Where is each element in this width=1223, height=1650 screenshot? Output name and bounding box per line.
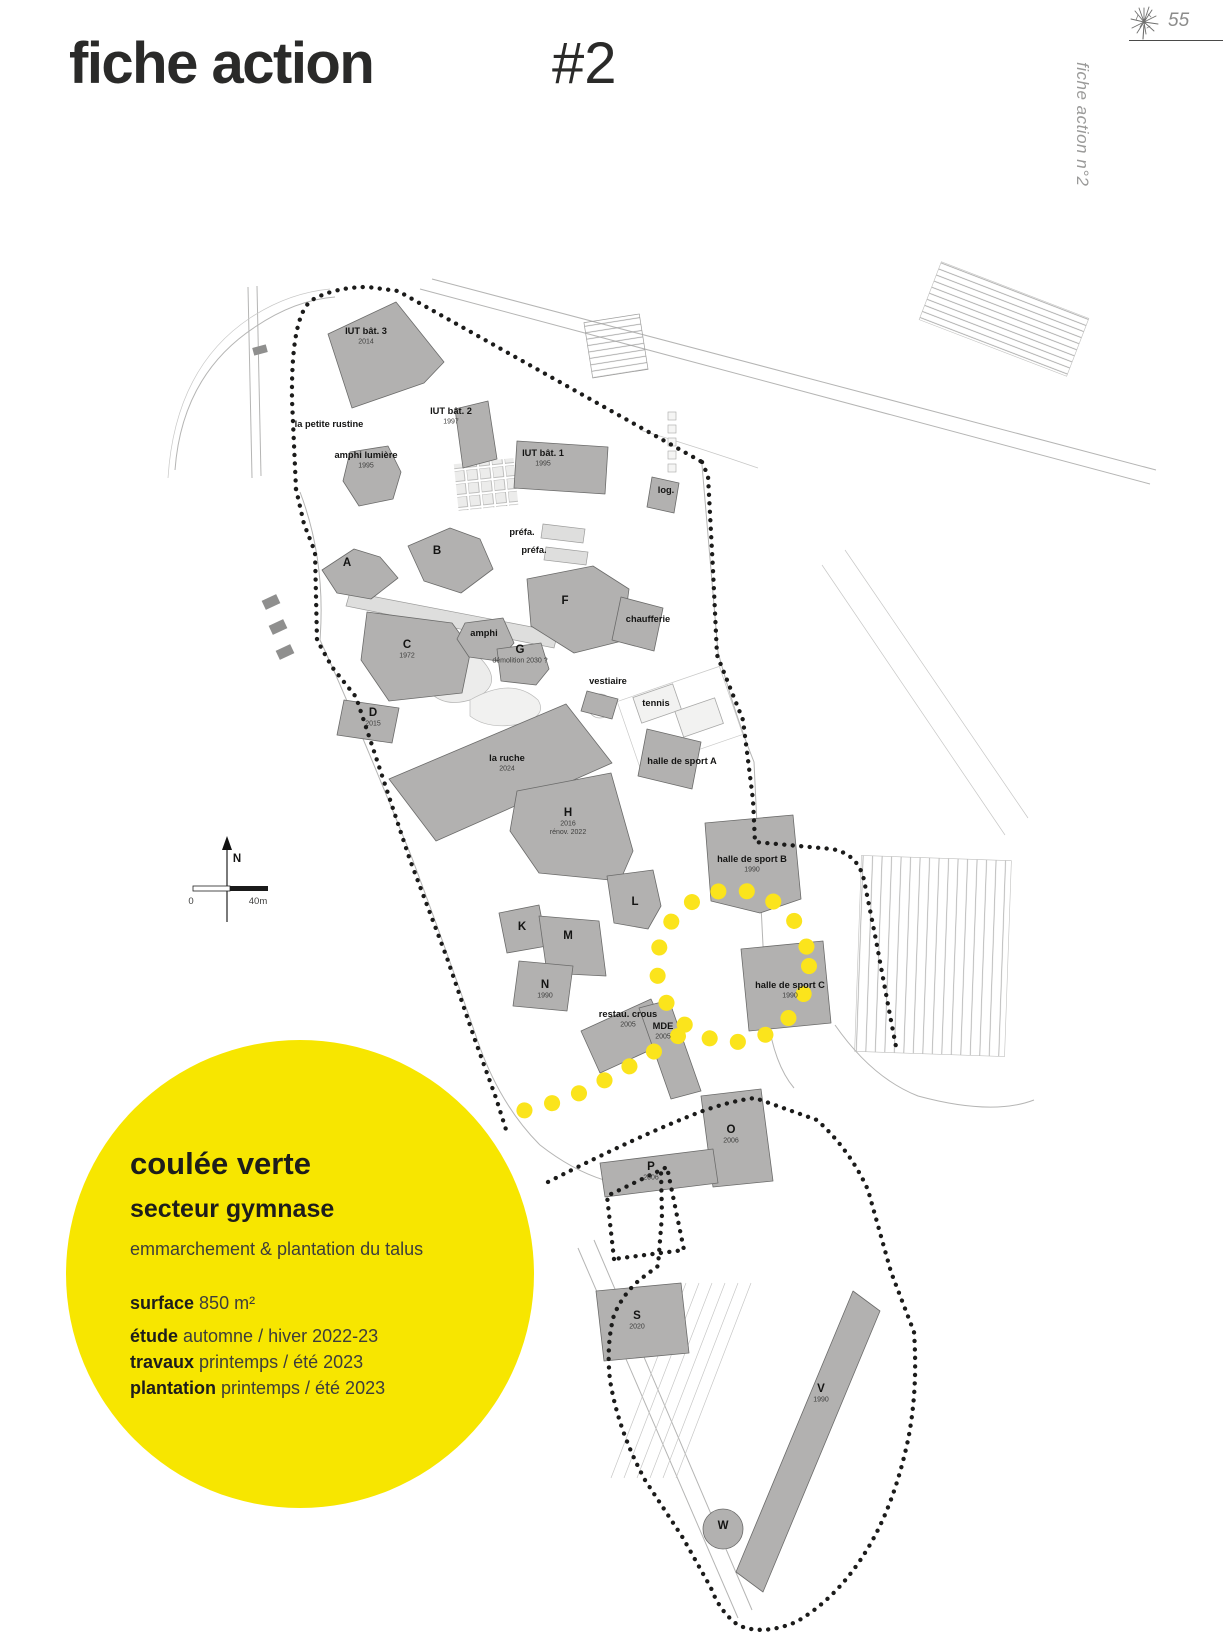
project-fields: surface 850 m²étude automne / hiver 2022… xyxy=(130,1290,510,1401)
building-year-label: 1990 xyxy=(813,1397,829,1404)
building-label: B xyxy=(433,545,441,557)
building-year-label: 2006 xyxy=(643,1175,659,1182)
building-year-label: 1972 xyxy=(399,653,415,660)
building-year-label: 2015 xyxy=(365,721,381,728)
building-label: halle de sport C xyxy=(755,980,825,990)
building-label: IUT bât. 3 xyxy=(345,326,387,336)
building-b xyxy=(408,528,493,593)
project-field-1: étude automne / hiver 2022-23 xyxy=(130,1323,510,1349)
building-vestiaire xyxy=(581,691,618,719)
building-year-label: 1990 xyxy=(537,993,553,1000)
building-year-label: 1995 xyxy=(358,463,374,470)
building-year-label: démolition 2030 ? xyxy=(492,658,547,665)
building-label: restau. crous xyxy=(599,1009,657,1019)
building-label: vestiaire xyxy=(589,676,627,686)
building-label: W xyxy=(718,1520,729,1532)
building-label: chaufferie xyxy=(626,614,670,624)
building-prefa-1 xyxy=(541,524,585,543)
building-year-label: 1990 xyxy=(744,867,760,874)
building-label: halle de sport A xyxy=(647,756,717,766)
scale-forty: 40m xyxy=(249,896,268,907)
building-year-label: 2024 xyxy=(499,766,515,773)
building-label: K xyxy=(518,921,527,933)
building-year-label: 1995 xyxy=(535,461,551,468)
building-label: IUT bât. 1 xyxy=(522,448,564,458)
building-label: amphi lumière xyxy=(334,450,397,460)
building-label: F xyxy=(561,595,568,607)
building-log xyxy=(647,477,679,513)
building-year-label: 2005 xyxy=(655,1034,671,1041)
building-year-label: 2014 xyxy=(358,339,374,346)
building-year-label: 2005 xyxy=(620,1022,636,1029)
field-label: étude xyxy=(130,1326,178,1346)
building-iut-bat-3 xyxy=(328,302,444,408)
project-description: emmarchement & plantation du talus xyxy=(130,1239,510,1260)
field-label: plantation xyxy=(130,1378,216,1398)
building-label: O xyxy=(727,1124,736,1136)
building-year-label: 2016 xyxy=(560,821,576,828)
field-label: travaux xyxy=(130,1352,194,1372)
building-year-label: 1997 xyxy=(443,419,459,426)
compass-scale: N 0 40m xyxy=(188,836,268,922)
building-label: la petite rustine xyxy=(295,419,364,429)
building-label: V xyxy=(817,1383,825,1395)
building-label: préfa. xyxy=(509,527,534,537)
project-field-3: plantation printemps / été 2023 xyxy=(130,1375,510,1401)
project-title: coulée verte xyxy=(130,1146,510,1182)
field-value: automne / hiver 2022-23 xyxy=(178,1326,378,1346)
scale-zero: 0 xyxy=(188,896,193,907)
project-field-0: surface 850 m² xyxy=(130,1290,510,1316)
building-year-label: 2006 xyxy=(723,1138,739,1145)
building-prefa-2 xyxy=(544,547,588,565)
north-arrow-icon xyxy=(222,836,232,850)
building-a xyxy=(322,549,398,599)
building-label: la ruche xyxy=(489,753,525,763)
building-v xyxy=(736,1291,880,1592)
field-value: printemps / été 2023 xyxy=(216,1378,385,1398)
building-label: MDE xyxy=(653,1021,674,1031)
building-label: log. xyxy=(658,485,675,495)
building-label: P xyxy=(647,1161,655,1173)
building-year-label: 1990 xyxy=(782,993,798,1000)
building-label: N xyxy=(541,979,549,991)
building-label: préfa. xyxy=(521,545,546,555)
building-label: M xyxy=(563,930,573,942)
building-label: H xyxy=(564,807,572,819)
building-label: S xyxy=(633,1310,641,1322)
building-year-label: 2020 xyxy=(629,1324,645,1331)
building-label: G xyxy=(516,644,525,656)
building-chaufferie xyxy=(612,597,663,651)
project-sector: secteur gymnase xyxy=(130,1195,510,1224)
building-label: C xyxy=(403,639,411,651)
building-label: L xyxy=(631,896,638,908)
building-label: tennis xyxy=(642,698,669,708)
project-field-2: travaux printemps / été 2023 xyxy=(130,1349,510,1375)
building-label: D xyxy=(369,707,377,719)
field-value: printemps / été 2023 xyxy=(194,1352,363,1372)
field-value: 850 m² xyxy=(194,1293,255,1313)
north-label: N xyxy=(233,853,241,865)
field-label: surface xyxy=(130,1293,194,1313)
building-label: amphi xyxy=(470,628,497,638)
building-label: A xyxy=(343,557,351,569)
building-year-label: rénov. 2022 xyxy=(550,829,587,836)
building-label: IUT bât. 2 xyxy=(430,406,472,416)
info-circle-text: coulée verte secteur gymnase emmarchemen… xyxy=(130,1146,510,1401)
building-label: halle de sport B xyxy=(717,854,787,864)
